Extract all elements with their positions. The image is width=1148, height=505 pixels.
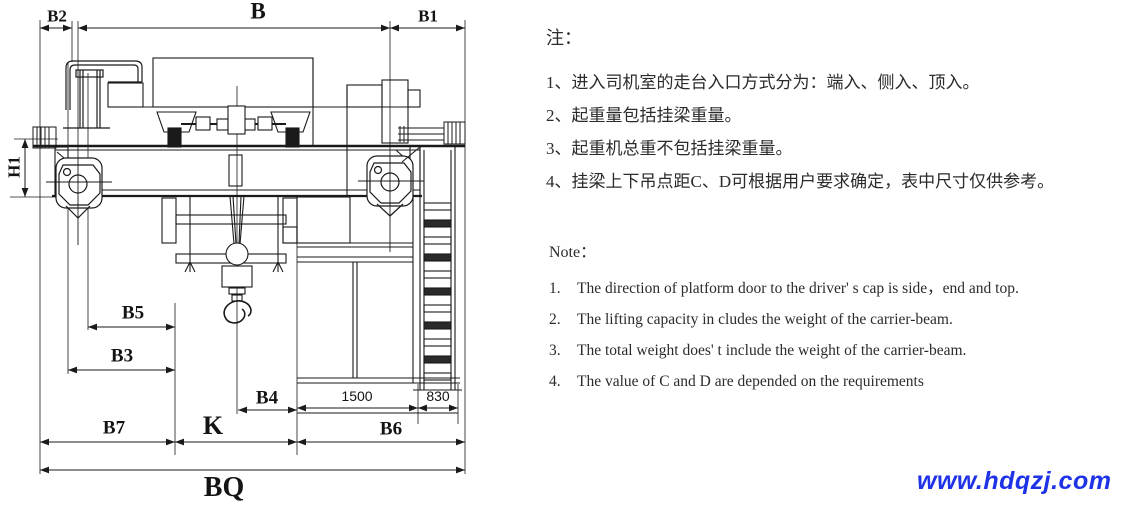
notes-chinese: 注： 1、进入司机室的走台入口方式分为：端入、侧入、顶入。 2、起重量包括挂梁重… bbox=[546, 27, 1148, 205]
notes-chinese-item: 2、起重量包括挂梁重量。 bbox=[546, 106, 1148, 126]
item-number: 4. bbox=[549, 372, 577, 391]
dim-label-830: 830 bbox=[426, 389, 449, 403]
cab-entry-rail bbox=[63, 61, 142, 128]
dim-label-b5: B5 bbox=[122, 304, 144, 323]
crane-drawing-canvas bbox=[0, 0, 505, 505]
item-number: 1. bbox=[549, 279, 577, 298]
notes-english: Note： 1. The direction of platform door … bbox=[549, 243, 1139, 403]
notes-english-item: 4. The value of C and D are depended on … bbox=[549, 372, 1139, 391]
notes-chinese-item: 1、进入司机室的走台入口方式分为：端入、侧入、顶入。 bbox=[546, 73, 1148, 93]
item-text: The value of C and D are depended on the… bbox=[577, 372, 924, 391]
dim-label-b2: B2 bbox=[47, 8, 67, 25]
dim-label-h1: H1 bbox=[6, 156, 23, 178]
dim-label-bq: BQ bbox=[204, 474, 244, 502]
right-wheel bbox=[358, 156, 424, 252]
notes-english-item: 2. The lifting capacity in cludes the we… bbox=[549, 310, 1139, 329]
crane-drawing: B2 B B1 H1 B5 B3 B4 1500 830 B7 K B6 BQ bbox=[0, 0, 505, 505]
dim-label-b3: B3 bbox=[111, 347, 133, 366]
dim-label-b4: B4 bbox=[256, 389, 278, 408]
dim-label-1500: 1500 bbox=[341, 389, 372, 403]
item-text: The total weight does' t include the wei… bbox=[577, 341, 966, 360]
page: B2 B B1 H1 B5 B3 B4 1500 830 B7 K B6 BQ … bbox=[0, 0, 1148, 505]
notes-chinese-item: 4、挂梁上下吊点距C、D可根据用户要求确定，表中尺寸仅供参考。 bbox=[546, 172, 1148, 192]
item-text: The lifting capacity in cludes the weigh… bbox=[577, 310, 953, 329]
notes-chinese-title: 注： bbox=[546, 27, 1148, 49]
item-number: 2. bbox=[549, 310, 577, 329]
item-text: The direction of platform door to the dr… bbox=[577, 279, 1019, 298]
item-number: 3. bbox=[549, 341, 577, 360]
watermark-url: www.hdqzj.com bbox=[917, 467, 1111, 496]
dim-label-b7: B7 bbox=[103, 419, 125, 438]
notes-english-item: 1. The direction of platform door to the… bbox=[549, 279, 1139, 298]
dim-label-b6: B6 bbox=[380, 420, 402, 439]
dim-label-k: K bbox=[203, 413, 223, 439]
dim-label-b: B bbox=[250, 0, 265, 23]
hook-assembly bbox=[162, 196, 297, 323]
left-wheel bbox=[46, 158, 112, 245]
notes-chinese-item: 3、起重机总重不包括挂梁重量。 bbox=[546, 139, 1148, 159]
dim-label-b1: B1 bbox=[418, 8, 438, 25]
notes-english-item: 3. The total weight does' t include the … bbox=[549, 341, 1139, 360]
notes-english-title: Note： bbox=[549, 243, 1139, 263]
